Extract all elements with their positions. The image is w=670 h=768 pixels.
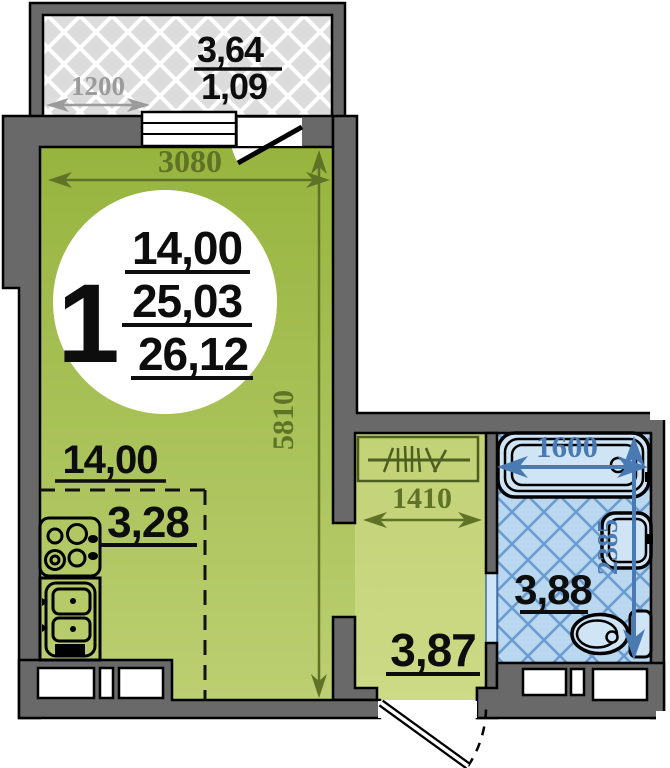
balcony-reduced-area-value: 1,09 [201, 66, 267, 107]
balcony-area-value: 3,64 [197, 29, 264, 70]
dimension-room-width-label: 3080 [158, 143, 222, 179]
hallway-area-label: 3,87 [386, 624, 480, 676]
unit-number: 1 [57, 261, 118, 386]
unit-total-area: 25,03 [132, 275, 242, 327]
unit-area-badge: 1 14,00 25,03 26,12 [53, 190, 277, 414]
bathroom-door-opening [486, 573, 497, 643]
wall-notch-top-right [650, 411, 666, 420]
bathroom-windows-icon [523, 669, 647, 700]
dimension-balcony-width-label: 1200 [71, 71, 125, 101]
bathroom-area-value: 3,88 [514, 566, 592, 613]
dimension-room-length-label: 5810 [267, 390, 300, 450]
hallway-area-value: 3,87 [390, 624, 476, 676]
unit-total-area-with-balcony: 26,12 [138, 328, 248, 380]
kitchen-windows-icon [38, 668, 163, 698]
kitchen-area-label: 3,28 [100, 498, 197, 547]
wall-bath-left-upper [486, 433, 497, 573]
kitchen-area-value: 3,28 [107, 498, 189, 547]
dimension-bathroom-width-label: 1600 [536, 429, 598, 464]
dimension-hallway-width-label: 1410 [392, 482, 452, 515]
room-area-value: 14,00 [62, 438, 157, 482]
dimension-bathroom-length-label: 2385 [593, 519, 624, 575]
entrance-door-icon [378, 701, 486, 766]
bathroom-area-label: 3,88 [514, 566, 592, 613]
wall-notch-bottom-right [656, 711, 670, 720]
unit-living-area: 14,00 [132, 222, 242, 274]
window-icon [142, 112, 236, 146]
floor-plan: 3080 5810 1200 1410 1600 2385 3,64 [0, 0, 670, 768]
room-area-label: 14,00 [55, 438, 166, 482]
